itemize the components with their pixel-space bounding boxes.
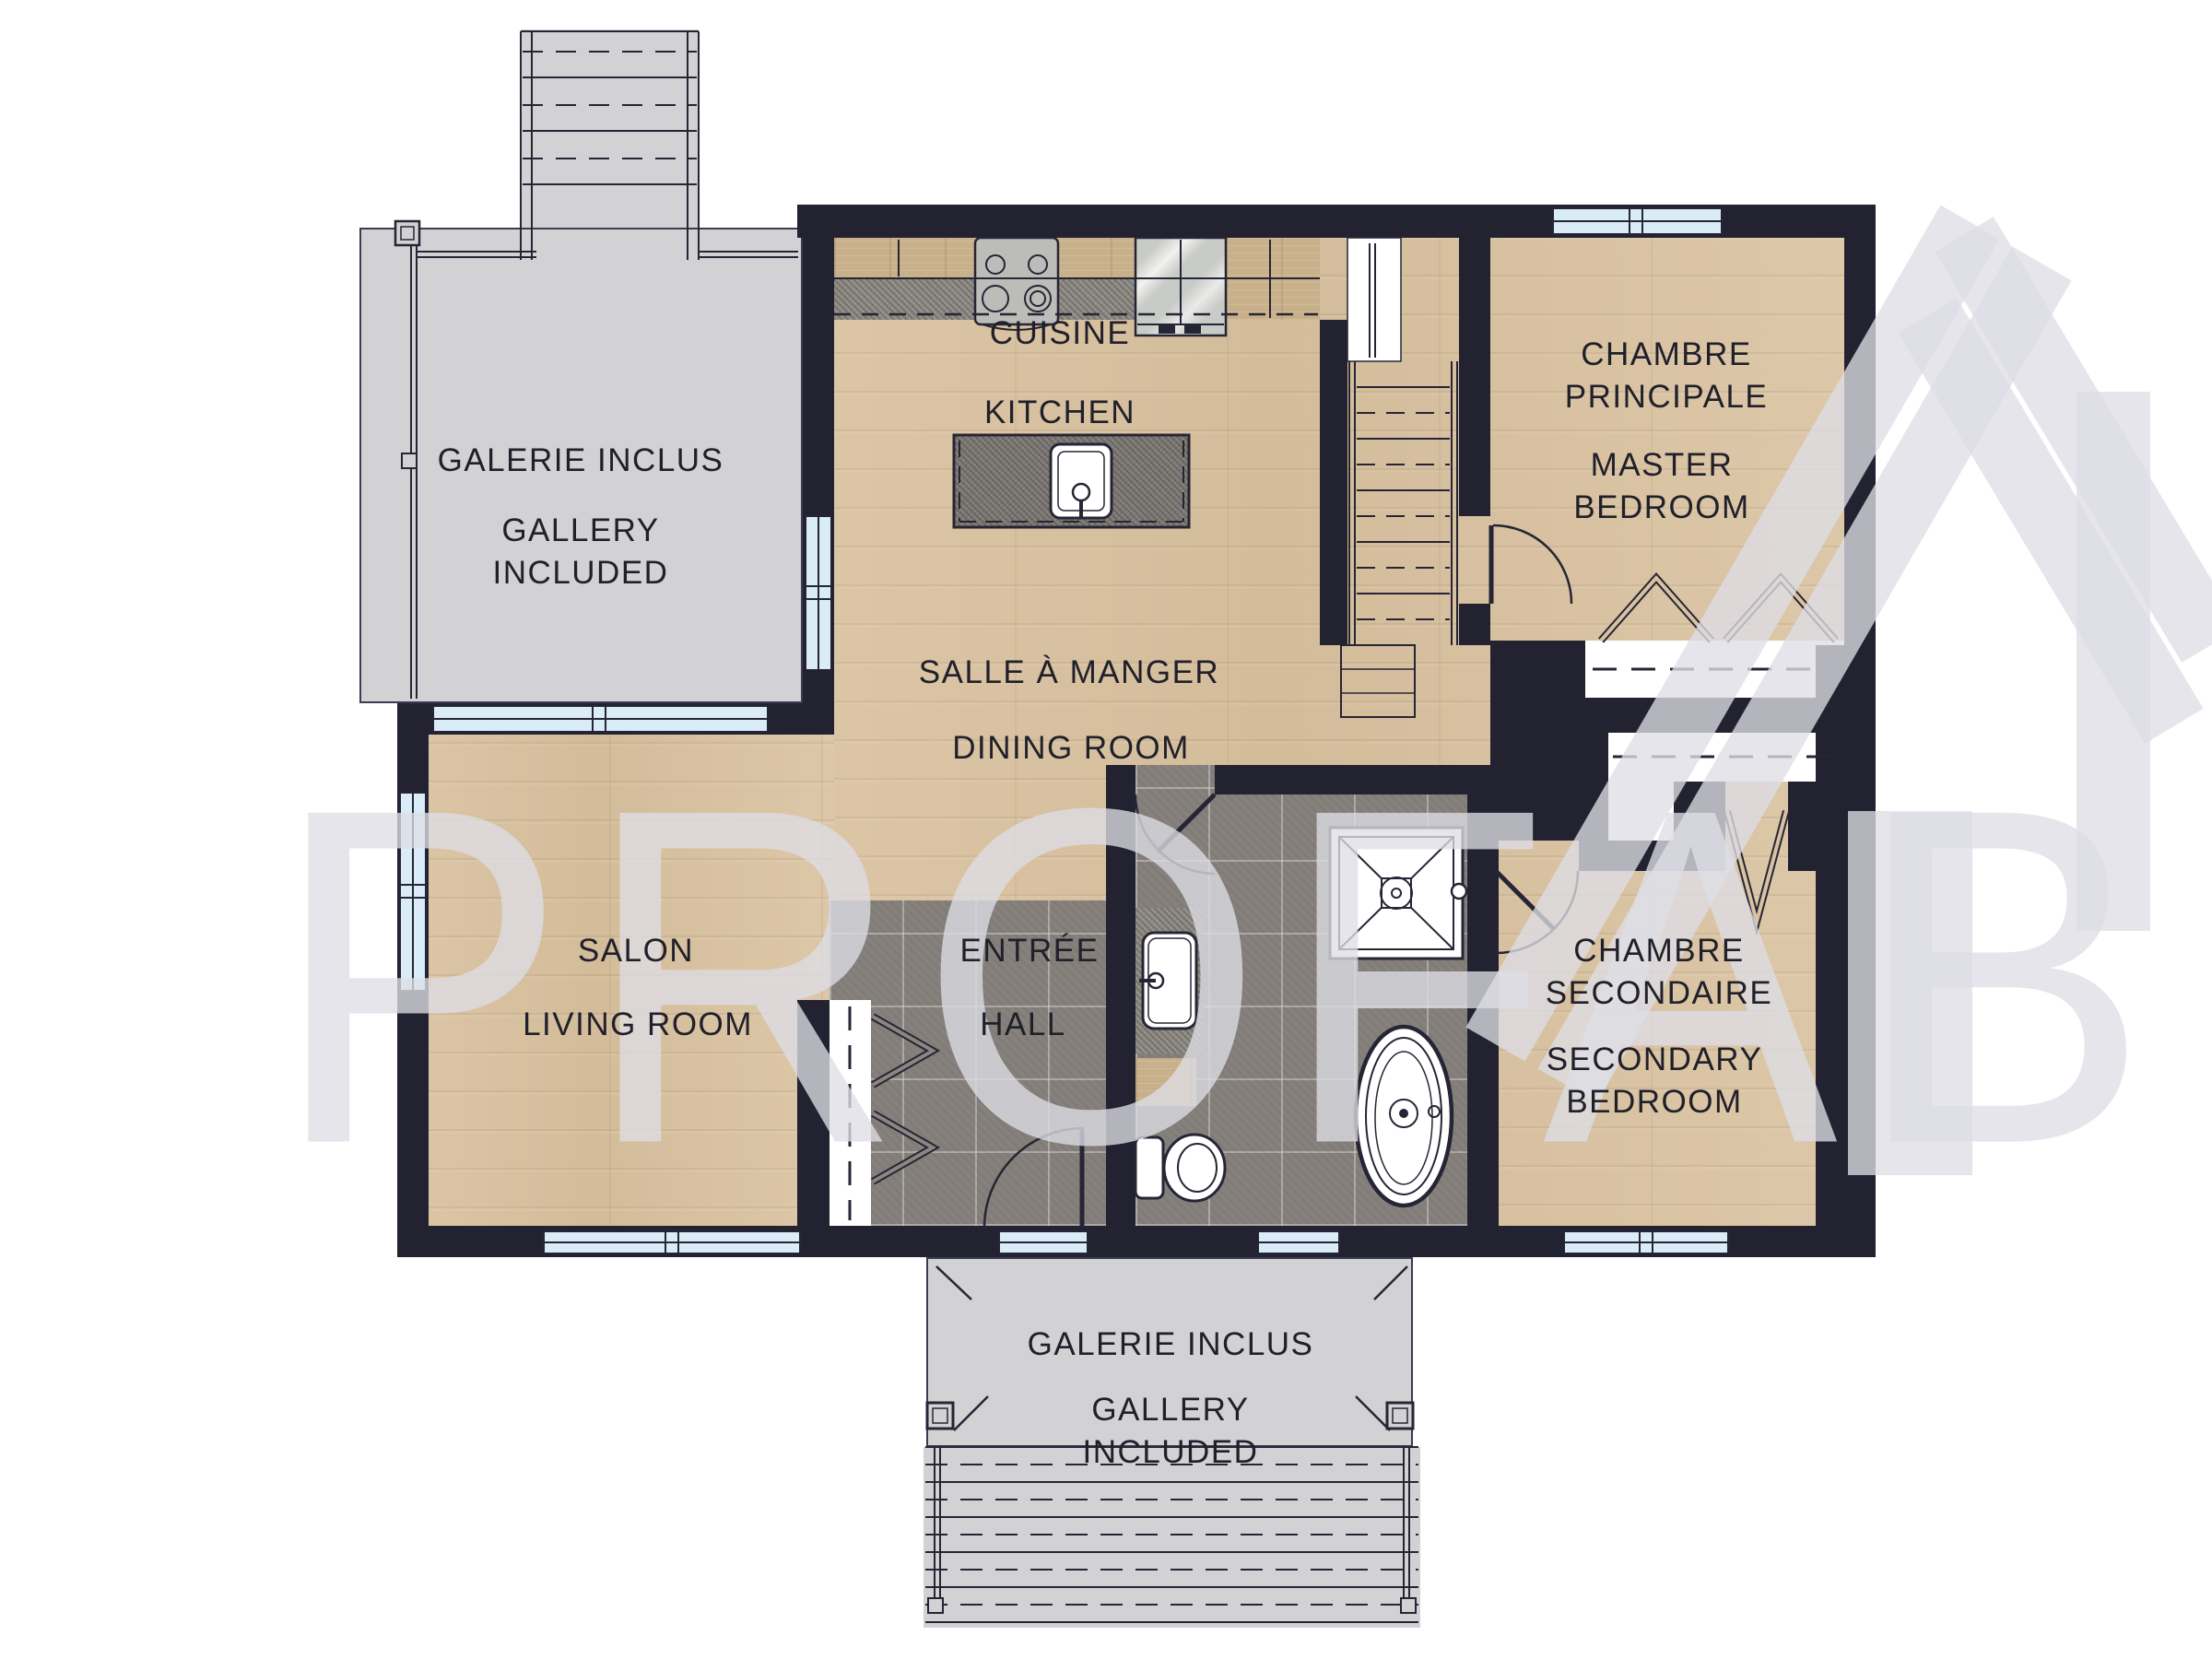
- hall-closet-bifold-doors: [873, 1017, 933, 1182]
- gallery-bottom-label-fr: GALERIE INCLUS: [1028, 1324, 1314, 1366]
- secondary-closet-bifold-door: [1727, 811, 1786, 922]
- refrigerator-lines: [1135, 238, 1226, 335]
- island-sink: [954, 435, 1189, 527]
- living-room-label-en: LIVING ROOM: [523, 1004, 753, 1046]
- gallery-top-label-en: GALLERY INCLUDED: [493, 510, 669, 594]
- hall-label-en: HALL: [980, 1004, 1066, 1046]
- hall-label-fr: ENTRÉE: [960, 930, 1100, 972]
- bathroom-door: [1135, 794, 1215, 874]
- dining-label-en: DINING ROOM: [952, 727, 1190, 770]
- shower: [1330, 828, 1466, 959]
- secondary-bedroom-label-en: SECONDARY BEDROOM: [1547, 1039, 1763, 1124]
- pantry-shelves: [1347, 238, 1401, 361]
- floor-plan: PROFAB GALERIE INCLUS GALLERY INCLUDED C…: [0, 0, 2212, 1659]
- kitchen-label-en: KITCHEN: [984, 392, 1135, 434]
- dining-label-fr: SALLE À MANGER: [919, 652, 1219, 694]
- master-closet-bifold-doors: [1601, 578, 1836, 641]
- interior-stairs: [1341, 361, 1457, 717]
- kitchen-linework: [834, 240, 1320, 318]
- bathtub: [1356, 1027, 1452, 1206]
- vanity-sink: [1139, 933, 1196, 1029]
- toilet: [1135, 1135, 1225, 1201]
- master-bedroom-label-fr: CHAMBRE PRINCIPALE: [1565, 334, 1769, 418]
- top-exterior-stairs: [521, 31, 699, 260]
- master-bedroom-door: [1491, 525, 1571, 604]
- front-door: [984, 1128, 1084, 1228]
- living-room-label-fr: SALON: [578, 930, 694, 972]
- kitchen-label-fr: CUISINE: [990, 312, 1130, 355]
- master-bedroom-label-en: MASTER BEDROOM: [1573, 444, 1749, 529]
- secondary-bedroom-label-fr: CHAMBRE SECONDAIRE: [1546, 930, 1772, 1015]
- gallery-bottom-label-en: GALLERY INCLUDED: [1083, 1389, 1259, 1474]
- gallery-top-label-fr: GALERIE INCLUS: [438, 440, 724, 482]
